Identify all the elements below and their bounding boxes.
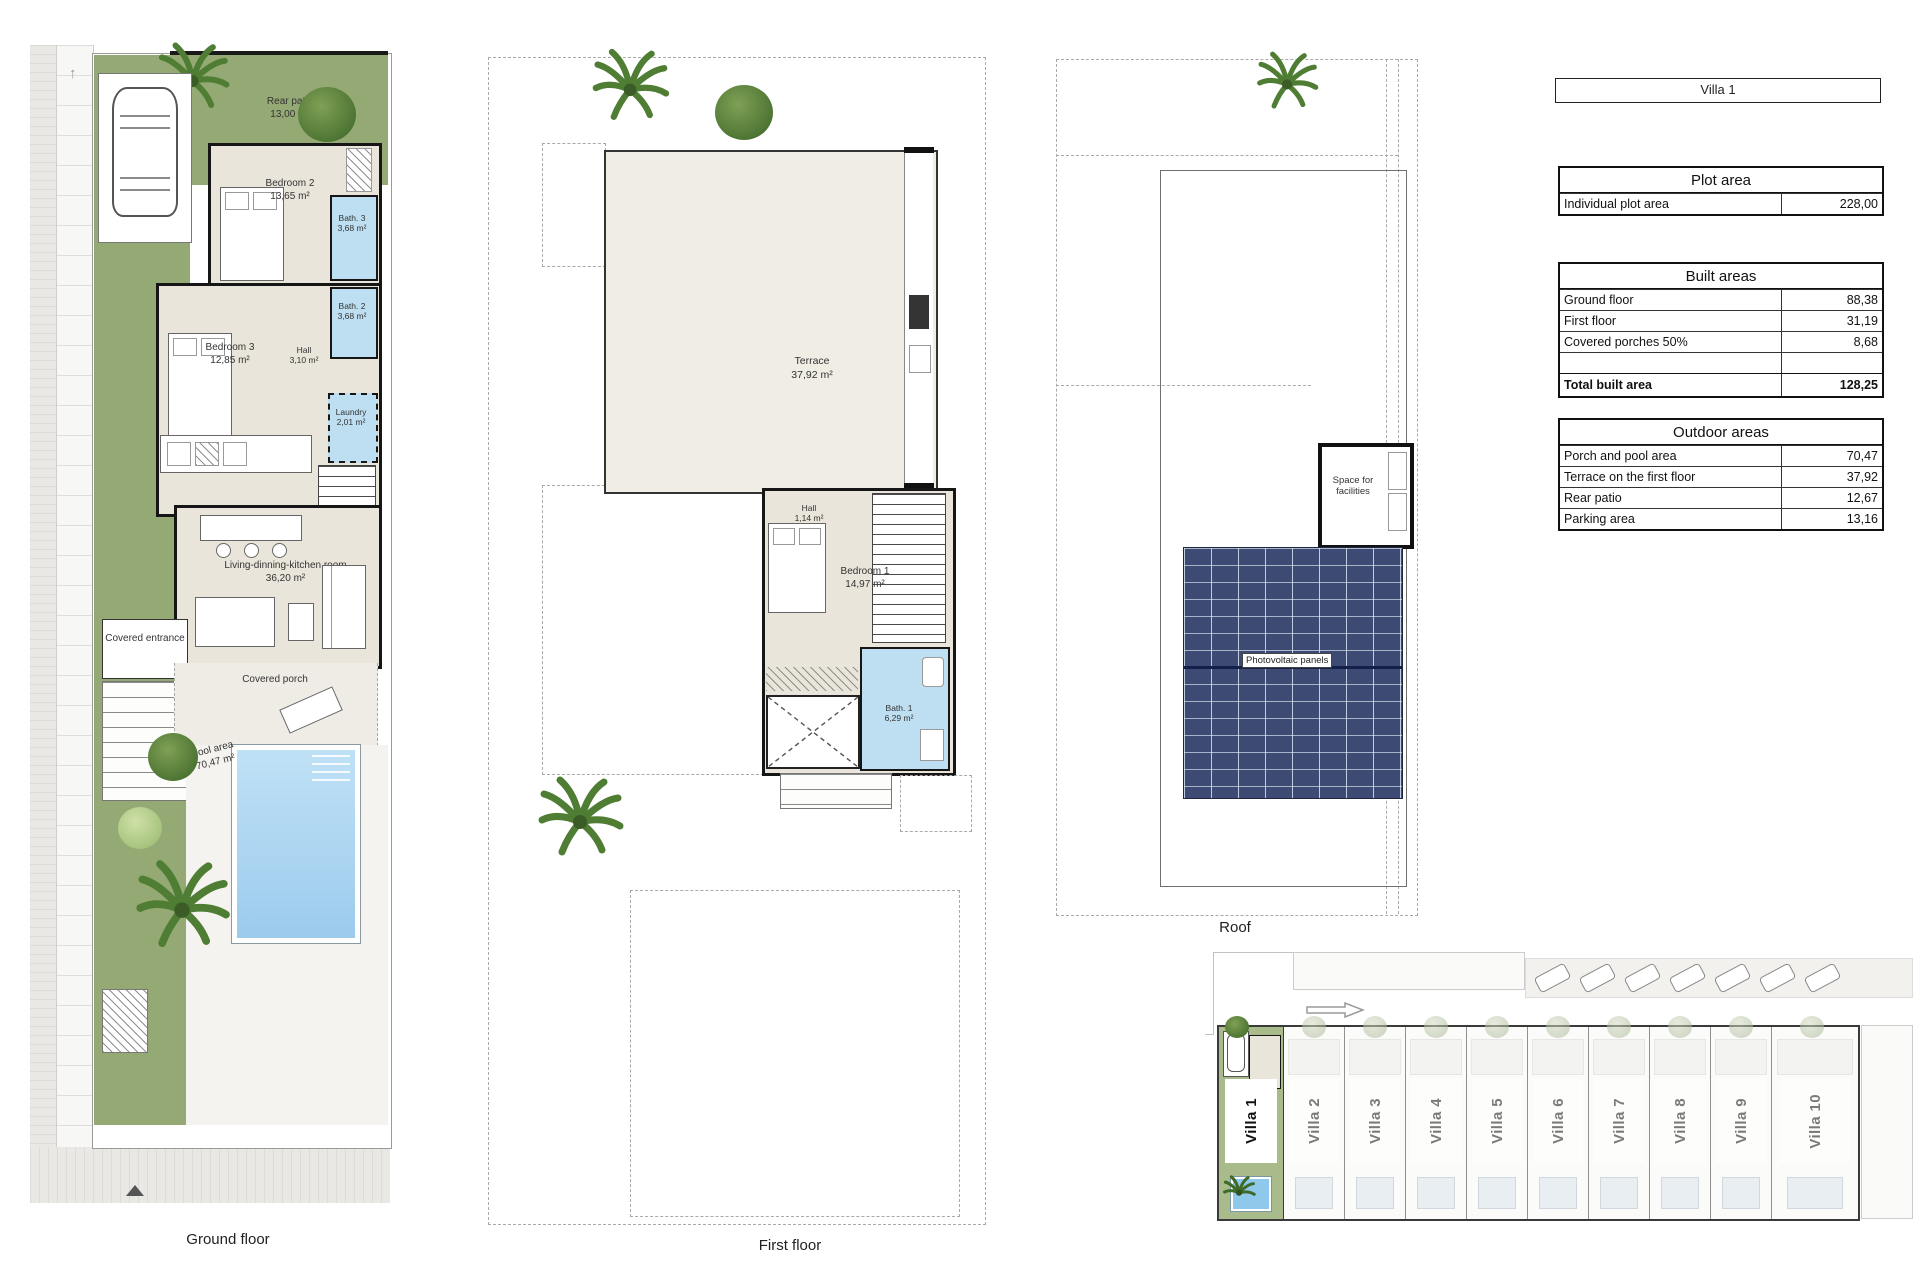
palm-tree-icon <box>525 770 635 870</box>
first-floor-caption: First floor <box>540 1237 1040 1254</box>
stool-icon <box>244 543 259 558</box>
villa-label-band: Villa 10 <box>1780 1079 1851 1163</box>
sink-icon <box>909 345 931 373</box>
table-row: Parking area 13,16 <box>1560 508 1882 529</box>
covered-entrance-label: Covered entrance <box>103 632 187 645</box>
footprint-dashed <box>900 775 972 832</box>
equipment-box <box>102 989 148 1053</box>
villa-label-band: Villa 5 <box>1472 1079 1521 1163</box>
site-plan: Villa 1 Villa 2 Vill <box>1205 950 1917 1278</box>
coffee-table-icon <box>288 603 314 641</box>
villa-plot-5: Villa 5 <box>1467 1027 1528 1219</box>
villa-label-band: Villa 7 <box>1594 1079 1643 1163</box>
tree-icon <box>1424 1016 1448 1038</box>
villa-plot-8: Villa 8 <box>1650 1027 1711 1219</box>
car-icon <box>1227 1034 1245 1072</box>
sofa-icon <box>322 565 366 649</box>
villa-plot-3: Villa 3 <box>1345 1027 1406 1219</box>
architectural-sheet: ↑ Rear patio 13,00 m² <box>0 0 1920 1280</box>
bedroom1-label: Bedroom 1 14,97 m² <box>810 565 920 591</box>
car-icon <box>1668 963 1706 994</box>
house-mini <box>1777 1039 1853 1076</box>
room-area: 2,01 m² <box>326 417 376 427</box>
sidewalk: ↑ <box>56 45 94 1147</box>
bath2-label: Bath. 2 3,68 m² <box>328 301 376 321</box>
common-area <box>1861 1025 1913 1219</box>
stool-icon <box>272 543 287 558</box>
row-value <box>1782 353 1882 373</box>
villa-plot-10: Villa 10 <box>1772 1027 1858 1219</box>
table-header: Outdoor areas <box>1560 420 1882 445</box>
table-row: Individual plot area 228,00 <box>1560 193 1882 214</box>
villa-label-band: Villa 3 <box>1350 1079 1399 1163</box>
villa-plot-9: Villa 9 <box>1711 1027 1772 1219</box>
palm-tree-icon <box>1219 1173 1259 1211</box>
void-skylight <box>766 695 860 769</box>
roof-plan: Space for facilities Photovoltaic panels… <box>1050 55 1430 955</box>
equipment-icon <box>1388 493 1407 531</box>
shower-icon <box>920 729 944 761</box>
villa-label: Villa 9 <box>1733 1098 1750 1144</box>
villa-label: Villa 1 <box>1243 1098 1260 1144</box>
room-name: Bath. 3 <box>328 213 376 223</box>
house-mini <box>1532 1039 1585 1076</box>
palm-tree-icon <box>580 43 680 133</box>
room-name: Hall <box>780 503 838 513</box>
footprint-dashed <box>542 485 764 775</box>
car-icon <box>1578 963 1616 994</box>
table-row-total: Total built area 128,25 <box>1560 373 1882 396</box>
row-value: 70,47 <box>1782 446 1882 466</box>
room-area: 14,97 m² <box>810 578 920 591</box>
row-label: Terrace on the first floor <box>1560 467 1782 487</box>
table-row-empty <box>1560 352 1882 373</box>
villa-label-band: Villa 8 <box>1655 1079 1704 1163</box>
room-name: Laundry <box>326 407 376 417</box>
villa-plot-6: Villa 6 <box>1528 1027 1589 1219</box>
row-label: First floor <box>1560 311 1782 331</box>
car-icon <box>1623 963 1661 994</box>
room-name: Covered entrance <box>103 632 187 645</box>
outdoor-areas-table: Outdoor areas Porch and pool area 70,47 … <box>1558 418 1884 531</box>
tree-icon <box>148 733 198 781</box>
room-area: 12,85 m² <box>175 354 285 367</box>
table-row: First floor 31,19 <box>1560 310 1882 331</box>
row-value: 31,19 <box>1782 311 1882 331</box>
room-area: 6,29 m² <box>864 713 934 723</box>
table-header: Plot area <box>1560 168 1882 193</box>
wall-segment <box>904 147 934 153</box>
terrace <box>604 150 938 494</box>
row-label: Individual plot area <box>1560 194 1782 214</box>
footprint-dashed <box>542 143 606 267</box>
row-value: 13,16 <box>1782 509 1882 529</box>
villa-label-band: Villa 6 <box>1533 1079 1582 1163</box>
bedroom3-label: Bedroom 3 12,85 m² <box>175 341 285 367</box>
terrace-label: Terrace 37,92 m² <box>752 355 872 382</box>
dining-table-icon <box>195 597 275 647</box>
row-value: 12,67 <box>1782 488 1882 508</box>
tree-icon <box>298 87 356 142</box>
villa-label-band: Villa 1 <box>1225 1079 1278 1163</box>
room-name: Bedroom 3 <box>175 341 285 354</box>
table-row: Porch and pool area 70,47 <box>1560 445 1882 466</box>
villa-label: Villa 5 <box>1489 1098 1506 1144</box>
villa-label: Villa 10 <box>1807 1094 1824 1149</box>
table-row: Ground floor 88,38 <box>1560 289 1882 310</box>
pool-mini <box>1722 1177 1760 1210</box>
car-icon <box>1713 963 1751 994</box>
row-value: 8,68 <box>1782 332 1882 352</box>
tree-icon <box>1302 1016 1326 1038</box>
room-name: Space for facilities <box>1324 475 1382 498</box>
room-name: Bath. 1 <box>864 703 934 713</box>
row-label: Porch and pool area <box>1560 446 1782 466</box>
cross-lines-icon <box>768 697 858 767</box>
stool-icon <box>216 543 231 558</box>
plot-area-table: Plot area Individual plot area 228,00 <box>1558 166 1884 216</box>
bath3-room <box>330 195 378 281</box>
pool-mini <box>1600 1177 1638 1210</box>
tree-icon <box>1607 1016 1631 1038</box>
house-mini <box>1410 1039 1463 1076</box>
room-name: Bedroom 2 <box>230 177 350 190</box>
laundry-room <box>328 393 378 463</box>
tree-icon <box>1800 1016 1824 1038</box>
toilet-icon <box>922 657 944 687</box>
room-name: Bedroom 1 <box>810 565 920 578</box>
car-icon <box>1758 963 1796 994</box>
neighbor-building <box>1293 952 1525 990</box>
house-mini <box>1349 1039 1402 1076</box>
ground-floor-plan: ↑ Rear patio 13,00 m² <box>30 45 390 1260</box>
villa-plot-7: Villa 7 <box>1589 1027 1650 1219</box>
row-label: Covered porches 50% <box>1560 332 1782 352</box>
laundry-label: Laundry 2,01 m² <box>326 407 376 427</box>
tree-icon <box>1225 1016 1249 1038</box>
street-strip-bottom <box>30 1147 390 1203</box>
pool-mini <box>1417 1177 1455 1210</box>
facilities-room: Space for facilities <box>1318 443 1414 549</box>
row-value: 88,38 <box>1782 290 1882 310</box>
street-strip <box>30 45 56 1147</box>
bath1-label: Bath. 1 6,29 m² <box>864 703 934 723</box>
pool-mini <box>1787 1177 1842 1210</box>
tree-icon <box>1668 1016 1692 1038</box>
room-name: Hall <box>274 345 334 355</box>
villa-label: Villa 4 <box>1428 1098 1445 1144</box>
villa-row: Villa 1 Villa 2 Vill <box>1217 1025 1860 1221</box>
villa-label: Villa 7 <box>1611 1098 1628 1144</box>
villa-plot-2: Villa 2 <box>1284 1027 1345 1219</box>
setback-line-dashed <box>1056 155 1398 156</box>
villa-plot-4: Villa 4 <box>1406 1027 1467 1219</box>
villa-label: Villa 6 <box>1550 1098 1567 1144</box>
hall-label: Hall 1,14 m² <box>780 503 838 523</box>
boundary-line <box>1205 1034 1214 1035</box>
row-value: 128,25 <box>1782 374 1882 396</box>
tree-icon <box>1546 1016 1570 1038</box>
villa-label: Villa 8 <box>1672 1098 1689 1144</box>
roof-caption: Roof <box>1155 919 1315 936</box>
row-label: Total built area <box>1560 374 1782 396</box>
built-areas-table: Built areas Ground floor 88,38 First flo… <box>1558 262 1884 398</box>
row-label: Ground floor <box>1560 290 1782 310</box>
room-name: Bath. 2 <box>328 301 376 311</box>
hall-label: Hall 3,10 m² <box>274 345 334 365</box>
pool-mini <box>1661 1177 1699 1210</box>
table-row: Rear patio 12,67 <box>1560 487 1882 508</box>
street-parking <box>1525 958 1913 998</box>
room-area: 1,14 m² <box>780 513 838 523</box>
photovoltaic-label: Photovoltaic panels <box>1242 653 1332 668</box>
appliance-icon <box>909 295 929 329</box>
row-label: Parking area <box>1560 509 1782 529</box>
entrance-marker-icon <box>126 1185 144 1196</box>
house-mini <box>1715 1039 1768 1076</box>
equipment-icon <box>1388 452 1407 490</box>
pool-mini <box>1539 1177 1577 1210</box>
kitchen-island <box>200 515 302 541</box>
pool-mini <box>1295 1177 1333 1210</box>
house-mini <box>1593 1039 1646 1076</box>
house-mini <box>1288 1039 1341 1076</box>
palm-tree-icon <box>122 853 242 963</box>
room-area: 3,68 m² <box>328 223 376 233</box>
wardrobe-strip <box>766 667 858 691</box>
tree-icon <box>118 807 162 849</box>
swimming-pool <box>232 745 360 943</box>
tree-icon <box>1485 1016 1509 1038</box>
room-area: 37,92 m² <box>752 369 872 383</box>
table-header: Built areas <box>1560 264 1882 289</box>
facilities-label: Space for facilities <box>1324 475 1382 498</box>
table-row: Covered porches 50% 8,68 <box>1560 331 1882 352</box>
row-label <box>1560 353 1782 373</box>
photovoltaic-array <box>1183 547 1403 799</box>
house-mini <box>1471 1039 1524 1076</box>
room-name: Covered porch <box>200 673 350 686</box>
palm-tree-icon <box>1248 47 1326 119</box>
kitchen-counter <box>160 435 312 473</box>
ground-floor-caption: Ground floor <box>48 1231 408 1248</box>
row-label: Rear patio <box>1560 488 1782 508</box>
tree-icon <box>715 85 773 140</box>
villa-label-band: Villa 2 <box>1289 1079 1338 1163</box>
villa-plot-1: Villa 1 <box>1219 1027 1284 1219</box>
car-icon <box>112 87 178 217</box>
villa-label-band: Villa 9 <box>1716 1079 1765 1163</box>
row-value: 228,00 <box>1782 194 1882 214</box>
villa-title-box: Villa 1 <box>1555 78 1881 103</box>
bath3-label: Bath. 3 3,68 m² <box>328 213 376 233</box>
room-name: Terrace <box>752 355 872 369</box>
pool-mini <box>1356 1177 1394 1210</box>
first-floor-plan: Terrace 37,92 m² Hall 1,14 m² Bedroom 1 … <box>480 55 995 1270</box>
outdoor-kitchen-counter <box>904 152 933 488</box>
outdoor-steps <box>780 773 892 809</box>
pool-mini <box>1478 1177 1516 1210</box>
covered-porch-label: Covered porch <box>200 673 350 686</box>
row-value: 37,92 <box>1782 467 1882 487</box>
villa-label: Villa 2 <box>1306 1098 1323 1144</box>
house-mini <box>1654 1039 1707 1076</box>
villa-label-band: Villa 4 <box>1411 1079 1460 1163</box>
table-row: Terrace on the first floor 37,92 <box>1560 466 1882 487</box>
room-area: 3,10 m² <box>274 355 334 365</box>
boundary-line <box>1213 952 1214 1034</box>
car-icon <box>1803 963 1841 994</box>
footprint-dashed <box>630 890 960 1217</box>
villa-label: Villa 3 <box>1367 1098 1384 1144</box>
room-area: 3,68 m² <box>328 311 376 321</box>
north-arrow-icon: ↑ <box>69 65 77 82</box>
tree-icon <box>1729 1016 1753 1038</box>
bath2-room <box>330 287 378 359</box>
tree-icon <box>1363 1016 1387 1038</box>
car-icon <box>1533 963 1571 994</box>
